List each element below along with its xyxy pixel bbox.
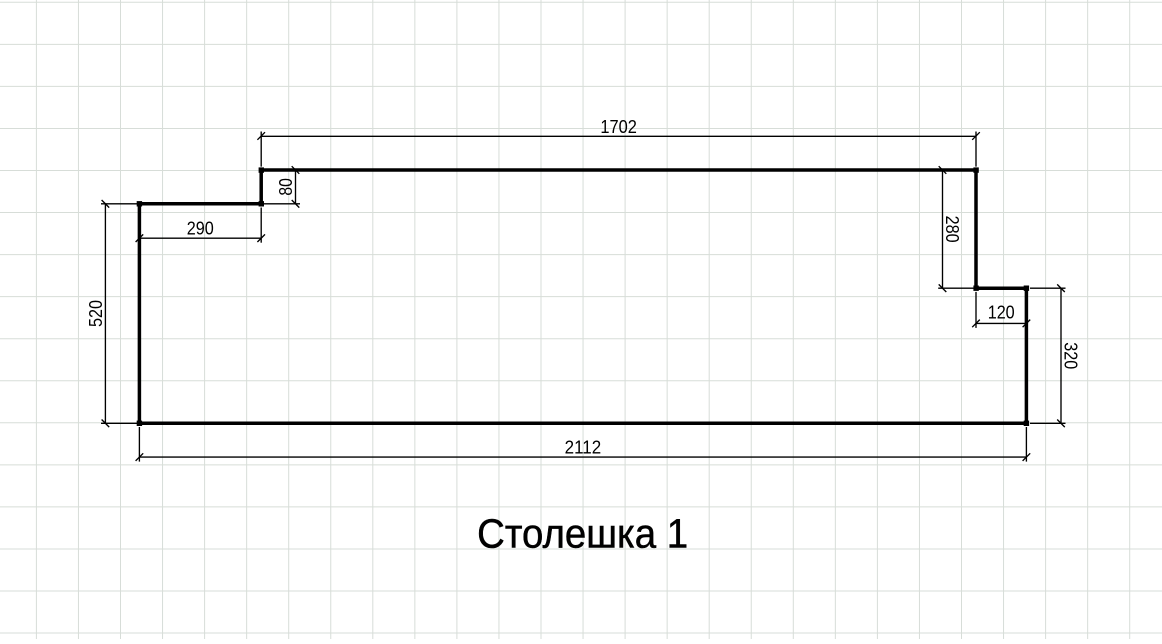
svg-text:80: 80 [275, 178, 296, 196]
svg-text:120: 120 [988, 302, 1015, 323]
svg-text:Столешка 1: Столешка 1 [477, 511, 688, 557]
svg-text:290: 290 [187, 218, 214, 239]
svg-text:280: 280 [942, 216, 963, 243]
svg-text:320: 320 [1060, 342, 1081, 369]
svg-text:520: 520 [85, 300, 106, 327]
svg-text:2112: 2112 [565, 437, 602, 458]
svg-text:1702: 1702 [600, 116, 637, 137]
